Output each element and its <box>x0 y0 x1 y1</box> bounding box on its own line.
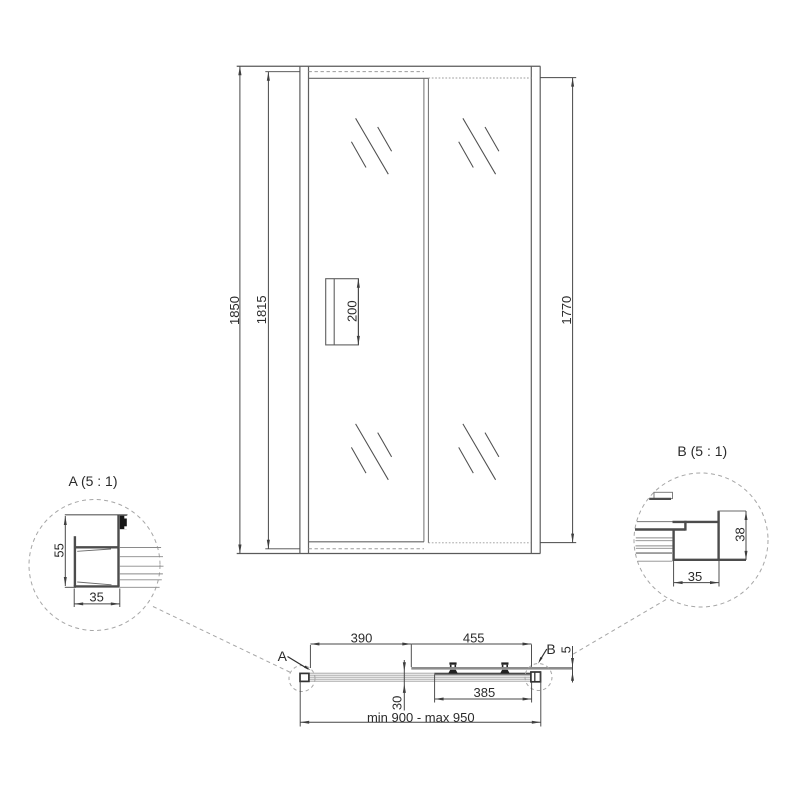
svg-text:B: B <box>546 641 555 657</box>
svg-text:38: 38 <box>732 527 747 541</box>
svg-text:B (5 : 1): B (5 : 1) <box>677 443 727 459</box>
svg-text:A: A <box>278 648 288 664</box>
svg-text:455: 455 <box>463 631 485 646</box>
svg-text:200: 200 <box>344 300 359 322</box>
svg-text:1815: 1815 <box>254 295 269 324</box>
svg-text:35: 35 <box>89 590 103 605</box>
svg-text:1850: 1850 <box>227 296 242 325</box>
svg-text:5: 5 <box>559 646 574 653</box>
svg-text:30: 30 <box>390 696 405 710</box>
svg-text:35: 35 <box>688 569 702 584</box>
svg-text:390: 390 <box>351 631 373 646</box>
svg-text:A (5 : 1): A (5 : 1) <box>68 473 117 489</box>
svg-text:min 900 - max 950: min 900 - max 950 <box>367 710 475 725</box>
svg-text:385: 385 <box>474 685 496 700</box>
svg-text:55: 55 <box>51 543 66 557</box>
svg-text:1770: 1770 <box>559 296 574 325</box>
